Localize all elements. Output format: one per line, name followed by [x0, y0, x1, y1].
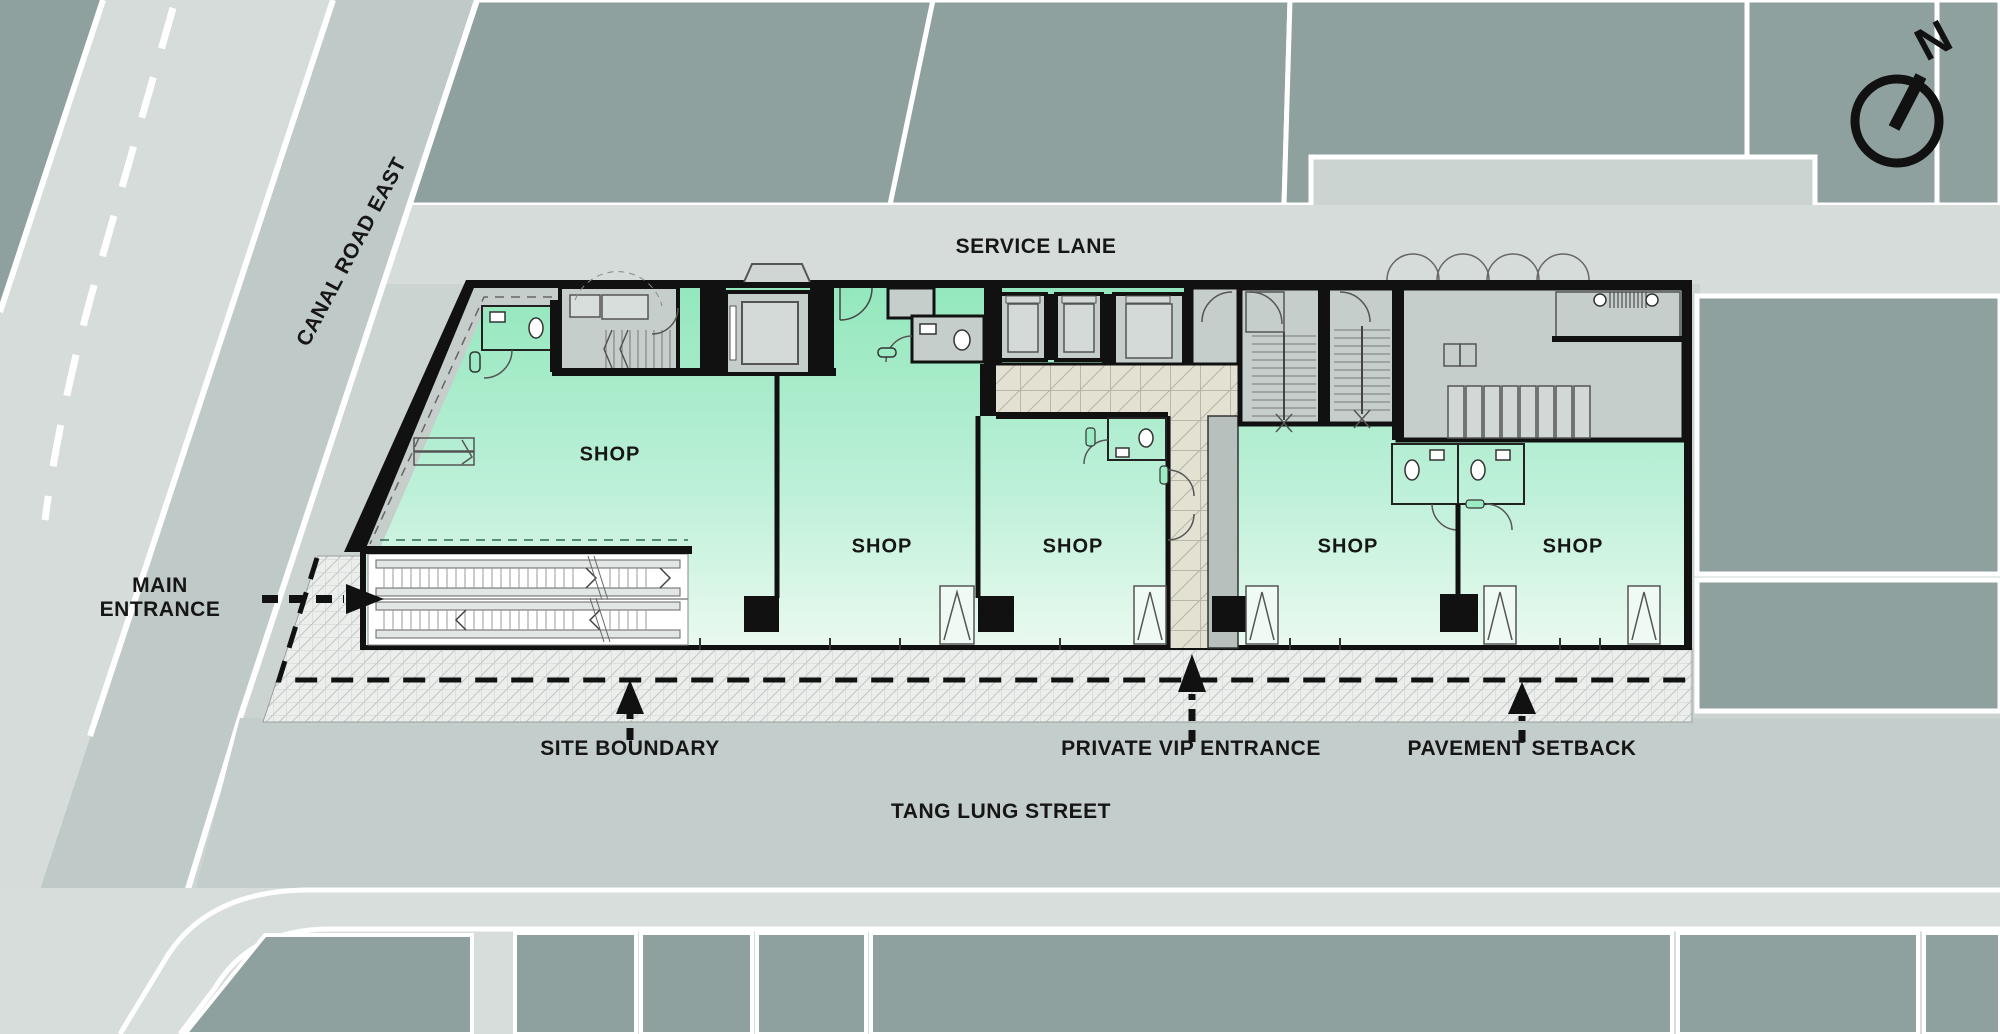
private-vip-entrance-label: PRIVATE VIP ENTRANCE [1061, 737, 1321, 761]
shop-label-1: SHOP [580, 444, 641, 467]
stair-core-west [560, 272, 678, 372]
main-entrance-label: MAIN ENTRANCE [80, 574, 240, 622]
site-plan-svg: N [0, 0, 2000, 1034]
pavement-setback-label: PAVEMENT SETBACK [1408, 737, 1637, 761]
service-lane-label: SERVICE LANE [956, 235, 1117, 259]
site-boundary-label: SITE BOUNDARY [540, 737, 720, 761]
building [344, 254, 1692, 650]
lift-bank-icons [996, 288, 1192, 368]
east-city-blocks [1697, 296, 2000, 711]
south-city-blocks [185, 933, 2000, 1034]
vip-lobby-tiles [980, 364, 1240, 419]
shop-label-2: SHOP [852, 536, 913, 559]
escalator-bay [362, 540, 692, 645]
shop-label-4: SHOP [1318, 536, 1379, 559]
tang-lung-street-label: TANG LUNG STREET [891, 800, 1111, 824]
stair-lobby-room [1192, 288, 1238, 364]
site-plan: N SERVICE LANE CANAL ROAD EAST MAIN ENTR… [0, 0, 2000, 1034]
shop-label-5: SHOP [1543, 536, 1604, 559]
shop-label-3: SHOP [1043, 536, 1104, 559]
